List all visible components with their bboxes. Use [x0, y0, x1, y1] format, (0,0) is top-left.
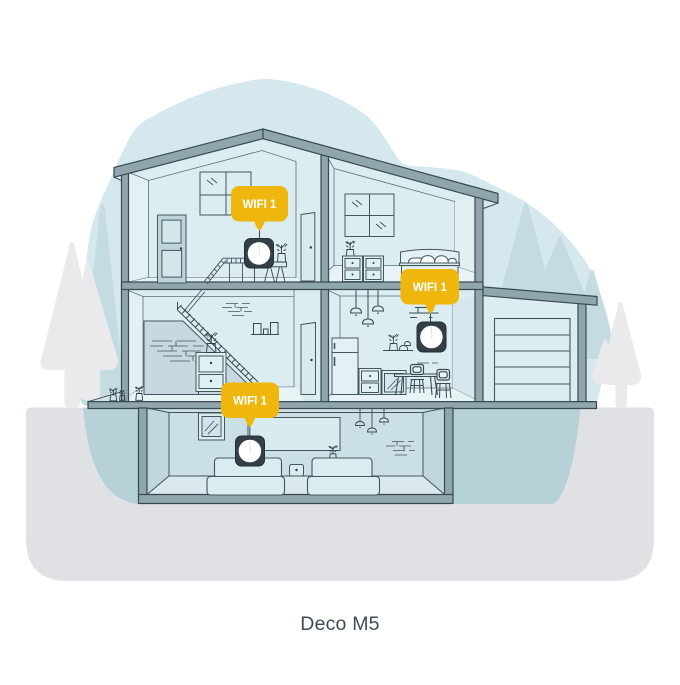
- svg-text:WIFI 1: WIFI 1: [233, 396, 267, 408]
- svg-text:WIFI 1: WIFI 1: [413, 282, 447, 294]
- svg-text:WIFI 1: WIFI 1: [243, 199, 277, 211]
